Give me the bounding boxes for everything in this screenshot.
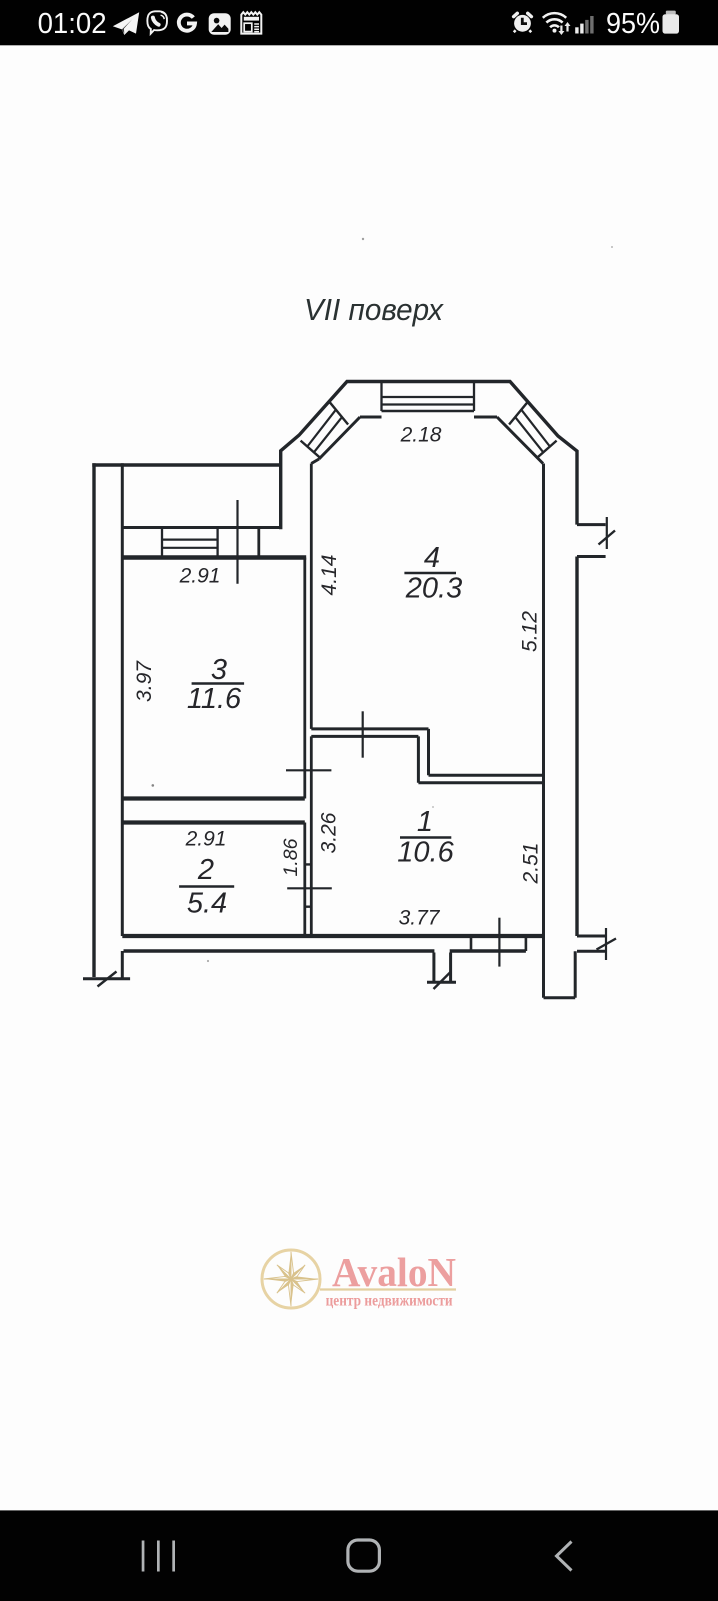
svg-text:3.97: 3.97 <box>133 660 156 702</box>
svg-text:2.91: 2.91 <box>185 828 227 851</box>
svg-text:VII поверх: VII поверх <box>304 292 444 327</box>
svg-text:3: 3 <box>211 654 227 686</box>
svg-text:2: 2 <box>197 854 214 886</box>
svg-text:3.77: 3.77 <box>399 907 441 930</box>
svg-text:5.4: 5.4 <box>187 888 227 920</box>
svg-text:AvaloN: AvaloN <box>332 1249 456 1295</box>
svg-text:2.51: 2.51 <box>520 843 543 885</box>
svg-text:11.6: 11.6 <box>187 683 242 715</box>
svg-text:2.91: 2.91 <box>179 565 221 588</box>
svg-text:2.18: 2.18 <box>400 424 442 447</box>
svg-text:4.14: 4.14 <box>318 555 341 596</box>
svg-text:5.12: 5.12 <box>519 611 542 652</box>
svg-text:20.3: 20.3 <box>405 573 462 605</box>
svg-text:1: 1 <box>417 806 433 838</box>
svg-text:3.26: 3.26 <box>318 812 341 853</box>
svg-text:01:02: 01:02 <box>38 8 107 40</box>
svg-text:центр недвижимости: центр недвижимости <box>326 1293 453 1310</box>
svg-text:4: 4 <box>424 542 440 574</box>
svg-text:10.6: 10.6 <box>397 837 454 869</box>
svg-text:95%: 95% <box>606 8 660 40</box>
svg-text:1.86: 1.86 <box>280 838 302 876</box>
